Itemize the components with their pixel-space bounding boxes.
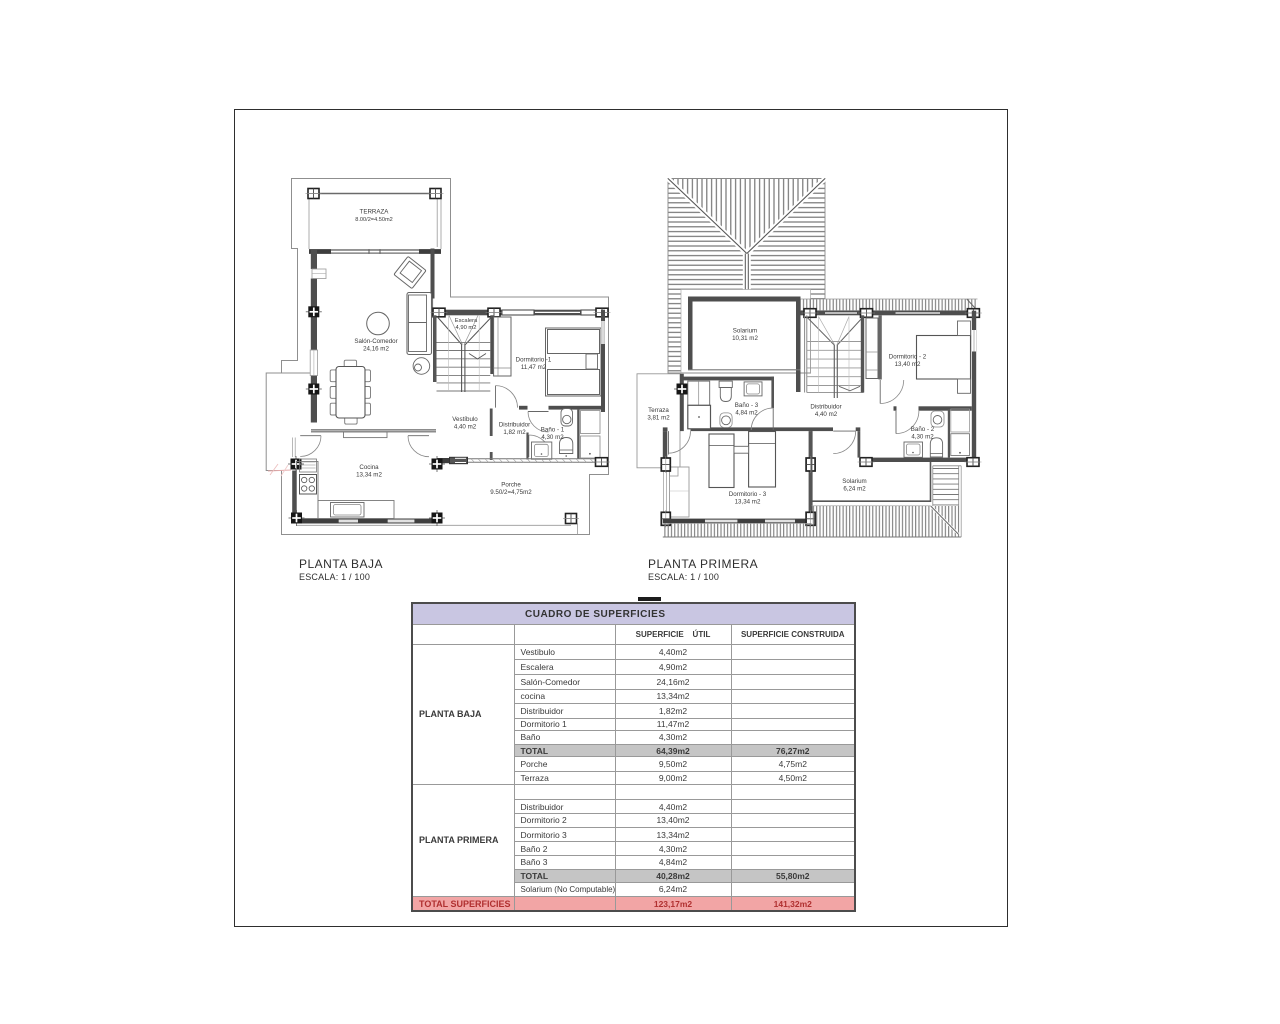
svg-text:4,40 m2: 4,40 m2 xyxy=(815,411,838,418)
svg-text:13,34 m2: 13,34 m2 xyxy=(735,499,761,506)
svg-text:4,40 m2: 4,40 m2 xyxy=(454,424,477,431)
svg-text:Cocina: Cocina xyxy=(359,464,379,471)
svg-text:Dormitorio - 2: Dormitorio - 2 xyxy=(889,354,927,361)
svg-text:8.00/2=4.50m2: 8.00/2=4.50m2 xyxy=(355,217,392,223)
svg-text:1,82 m2: 1,82 m2 xyxy=(503,429,526,436)
svg-text:Vestíbulo: Vestíbulo xyxy=(452,416,478,423)
svg-text:Terraza: Terraza xyxy=(648,407,669,414)
svg-text:Dormitorio -1: Dormitorio -1 xyxy=(516,357,552,364)
svg-text:TERRAZA: TERRAZA xyxy=(360,209,390,216)
svg-text:Porche: Porche xyxy=(501,482,521,489)
svg-text:4,90 m2: 4,90 m2 xyxy=(456,325,477,331)
svg-text:Baño - 3: Baño - 3 xyxy=(735,402,759,409)
svg-text:Baño - 2: Baño - 2 xyxy=(911,426,935,433)
svg-text:4,30 m2: 4,30 m2 xyxy=(911,434,934,441)
svg-text:10,31 m2: 10,31 m2 xyxy=(732,335,758,342)
svg-text:13,34 m2: 13,34 m2 xyxy=(356,472,382,479)
svg-text:Distribuidor: Distribuidor xyxy=(810,404,841,411)
svg-text:Solarium: Solarium xyxy=(733,328,757,335)
svg-text:9.50/2=4,75m2: 9.50/2=4,75m2 xyxy=(490,489,532,496)
svg-text:24,16 m2: 24,16 m2 xyxy=(363,346,389,353)
svg-text:4,30 m2: 4,30 m2 xyxy=(541,434,564,441)
svg-text:4,84 m2: 4,84 m2 xyxy=(735,410,758,417)
svg-text:Dormitorio - 3: Dormitorio - 3 xyxy=(729,491,767,498)
svg-text:Distribuidor: Distribuidor xyxy=(499,422,530,429)
svg-text:13,40 m2: 13,40 m2 xyxy=(895,361,921,368)
svg-text:Baño - 1: Baño - 1 xyxy=(541,427,565,434)
svg-text:Solarium: Solarium xyxy=(842,478,866,485)
svg-text:Salón-Comedor: Salón-Comedor xyxy=(354,338,397,345)
svg-text:6,24 m2: 6,24 m2 xyxy=(843,486,866,493)
svg-text:11,47 m2: 11,47 m2 xyxy=(521,364,547,371)
svg-text:3,81 m2: 3,81 m2 xyxy=(647,415,670,422)
svg-text:Escalera: Escalera xyxy=(455,318,478,324)
